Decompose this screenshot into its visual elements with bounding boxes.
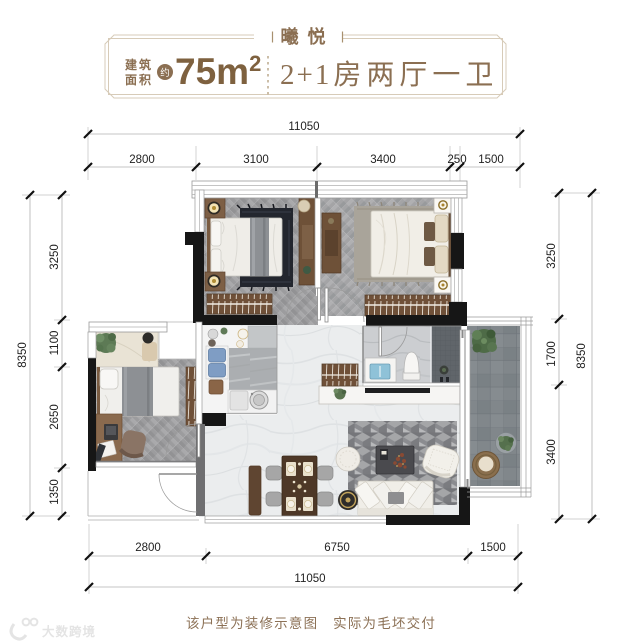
- svg-text:2800: 2800: [135, 542, 161, 554]
- svg-text:3100: 3100: [243, 154, 269, 166]
- svg-text:3400: 3400: [370, 154, 396, 166]
- svg-text:建筑: 建筑: [124, 57, 153, 72]
- svg-text:11050: 11050: [294, 573, 325, 585]
- svg-text:75m2: 75m2: [175, 51, 261, 92]
- svg-text:约: 约: [160, 67, 170, 79]
- svg-text:6750: 6750: [324, 542, 350, 554]
- svg-text:8350: 8350: [576, 343, 588, 369]
- svg-text:11050: 11050: [288, 121, 319, 133]
- svg-text:2800: 2800: [129, 154, 155, 166]
- svg-text:3400: 3400: [546, 439, 558, 465]
- svg-text:1100: 1100: [49, 331, 61, 356]
- svg-text:1350: 1350: [49, 479, 61, 505]
- svg-text:大数跨境: 大数跨境: [42, 624, 96, 639]
- svg-text:2+1房两厅一卫: 2+1房两厅一卫: [280, 59, 498, 91]
- svg-text:面积: 面积: [125, 72, 153, 87]
- svg-text:3250: 3250: [49, 244, 61, 270]
- svg-text:3250: 3250: [546, 243, 558, 269]
- svg-text:8350: 8350: [17, 342, 29, 368]
- svg-text:该户型为装修示意图 实际为毛坯交付: 该户型为装修示意图 实际为毛坯交付: [186, 615, 436, 631]
- svg-text:1700: 1700: [546, 341, 558, 367]
- svg-text:1500: 1500: [480, 542, 506, 554]
- svg-text:250: 250: [447, 154, 466, 166]
- svg-text:1500: 1500: [478, 154, 504, 166]
- svg-text:2650: 2650: [49, 404, 61, 430]
- svg-text:曦悦: 曦悦: [281, 26, 335, 47]
